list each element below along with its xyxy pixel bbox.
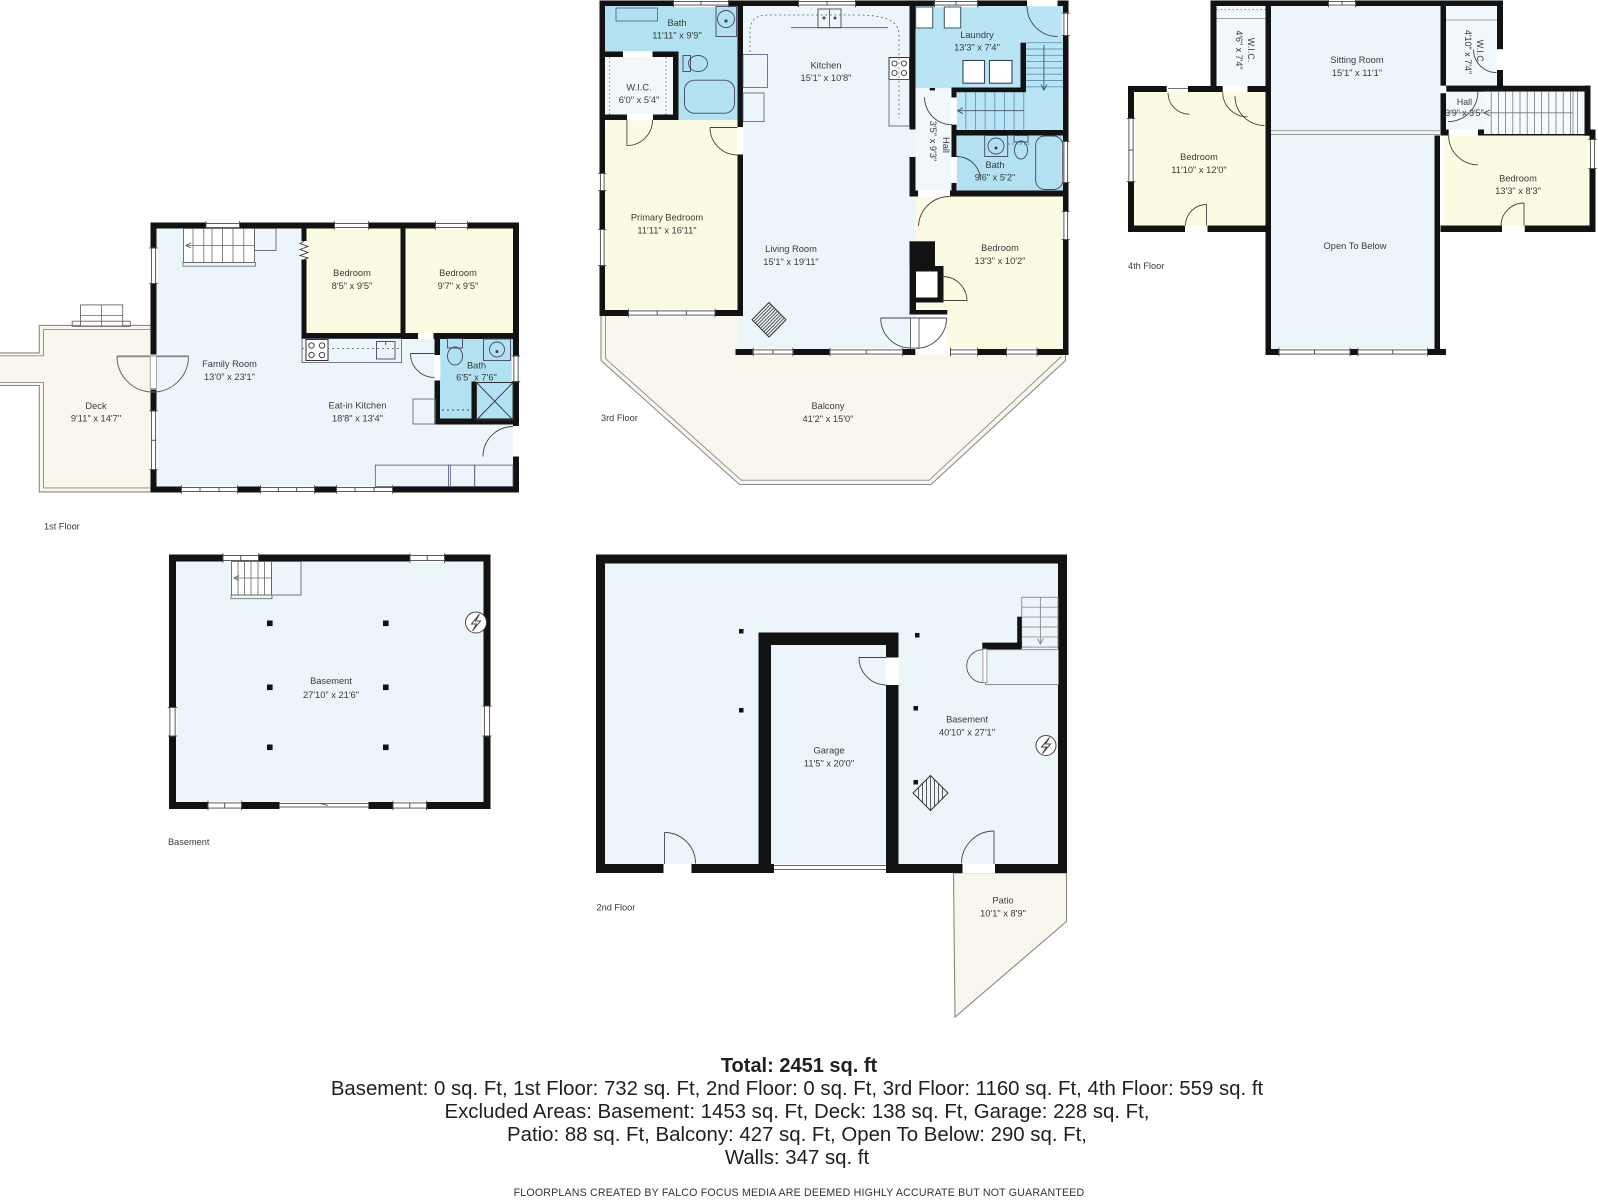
svg-text:Bedroom: Bedroom [1180,152,1218,162]
svg-text:Basement: Basement [168,837,210,847]
svg-text:11′10" x 12′0": 11′10" x 12′0" [1171,165,1226,175]
svg-text:Primary Bedroom: Primary Bedroom [631,213,704,223]
svg-text:6′0" x 5′4": 6′0" x 5′4" [619,95,660,105]
svg-text:Patio: 88 sq. Ft, Balcony: 427: Patio: 88 sq. Ft, Balcony: 427 sq. Ft, O… [507,1124,1087,1146]
svg-text:11′11" x 9′9": 11′11" x 9′9" [652,31,702,41]
svg-text:6'5" x 7'6": 6'5" x 7'6" [456,373,497,383]
svg-text:4th Floor: 4th Floor [1128,261,1164,271]
svg-text:Open To Below: Open To Below [1324,241,1387,251]
svg-text:Family Room: Family Room [202,359,257,369]
svg-text:10'1" x 8'9": 10'1" x 8'9" [980,909,1026,919]
svg-text:40′10" x 27′1": 40′10" x 27′1" [939,728,995,738]
svg-text:Balcony: Balcony [811,401,844,411]
svg-text:Deck: Deck [85,401,107,411]
svg-text:Laundry: Laundry [960,30,994,40]
svg-text:Patio: Patio [992,896,1013,906]
svg-text:Excluded Areas: Basement: 1453: Excluded Areas: Basement: 1453 sq. Ft, D… [445,1101,1150,1123]
svg-text:27′10" x 21′6": 27′10" x 21′6" [303,690,359,700]
svg-text:Living Room: Living Room [765,244,817,254]
svg-text:13'0" x 23'1": 13'0" x 23'1" [204,372,255,382]
svg-text:15′1" x 19′11": 15′1" x 19′11" [763,257,818,267]
svg-text:9'7" x 9'5": 9'7" x 9'5" [438,281,479,291]
svg-text:13′3" x 7′4": 13′3" x 7′4" [954,43,1000,53]
svg-text:3′9" x 3′5": 3′9" x 3′5" [1445,108,1483,118]
svg-text:13′3" x 10′2": 13′3" x 10′2" [975,256,1026,266]
svg-text:11′11" x 16′11": 11′11" x 16′11" [637,226,696,236]
svg-text:18'8" x 13'4": 18'8" x 13'4" [332,414,383,424]
svg-text:FLOORPLANS CREATED BY FALCO FO: FLOORPLANS CREATED BY FALCO FOCUS MEDIA … [514,1187,1085,1199]
svg-text:Eat-in Kitchen: Eat-in Kitchen [329,401,387,411]
svg-text:W.I.C.: W.I.C. [1475,40,1485,65]
svg-text:Sitting Room: Sitting Room [1330,55,1383,65]
svg-text:Bedroom: Bedroom [333,268,371,278]
svg-text:8'5" x 9'5": 8'5" x 9'5" [332,281,373,291]
svg-text:4′6" x 7′4": 4′6" x 7′4" [1234,30,1244,69]
svg-text:Garage: Garage [813,746,844,756]
svg-text:Basement: Basement [310,676,352,686]
svg-text:9'11" x 14'7": 9'11" x 14'7" [71,414,121,424]
svg-text:9′6" x 5′2": 9′6" x 5′2" [975,173,1016,183]
svg-text:11'5" x 20'0": 11'5" x 20'0" [804,759,854,769]
svg-text:13′3" x 8′3": 13′3" x 8′3" [1495,186,1541,196]
svg-text:15′1" x 10′8": 15′1" x 10′8" [801,73,852,83]
svg-text:2nd Floor: 2nd Floor [597,903,636,913]
svg-text:Hall: Hall [1457,97,1472,107]
svg-text:Bedroom: Bedroom [439,268,477,278]
svg-text:Bath: Bath [467,361,486,371]
svg-text:3rd Floor: 3rd Floor [601,413,638,423]
svg-text:41'2" x 15'0": 41'2" x 15'0" [803,414,854,424]
svg-text:Basement: 0 sq. Ft, 1st Floor:: Basement: 0 sq. Ft, 1st Floor: 732 sq. F… [331,1078,1264,1100]
svg-text:Bath: Bath [985,160,1004,170]
svg-text:Hall: Hall [941,137,951,153]
svg-text:3′5" x 9′3": 3′5" x 9′3" [928,121,938,162]
svg-text:W.I.C.: W.I.C. [626,83,651,93]
svg-text:Bedroom: Bedroom [1499,174,1537,184]
svg-text:15′1" x 11′1": 15′1" x 11′1" [1332,68,1382,78]
svg-text:Bath: Bath [667,18,686,28]
svg-text:Kitchen: Kitchen [810,61,841,71]
svg-text:Basement: Basement [946,715,988,725]
svg-text:Walls: 347 sq. ft: Walls: 347 sq. ft [725,1147,870,1169]
svg-text:4′10" x 7′4": 4′10" x 7′4" [1463,30,1473,74]
svg-text:1st Floor: 1st Floor [44,522,80,532]
svg-text:Total: 2451 sq. ft: Total: 2451 sq. ft [721,1055,878,1077]
svg-text:W.I.C.: W.I.C. [1246,38,1256,63]
svg-text:Bedroom: Bedroom [981,243,1019,253]
